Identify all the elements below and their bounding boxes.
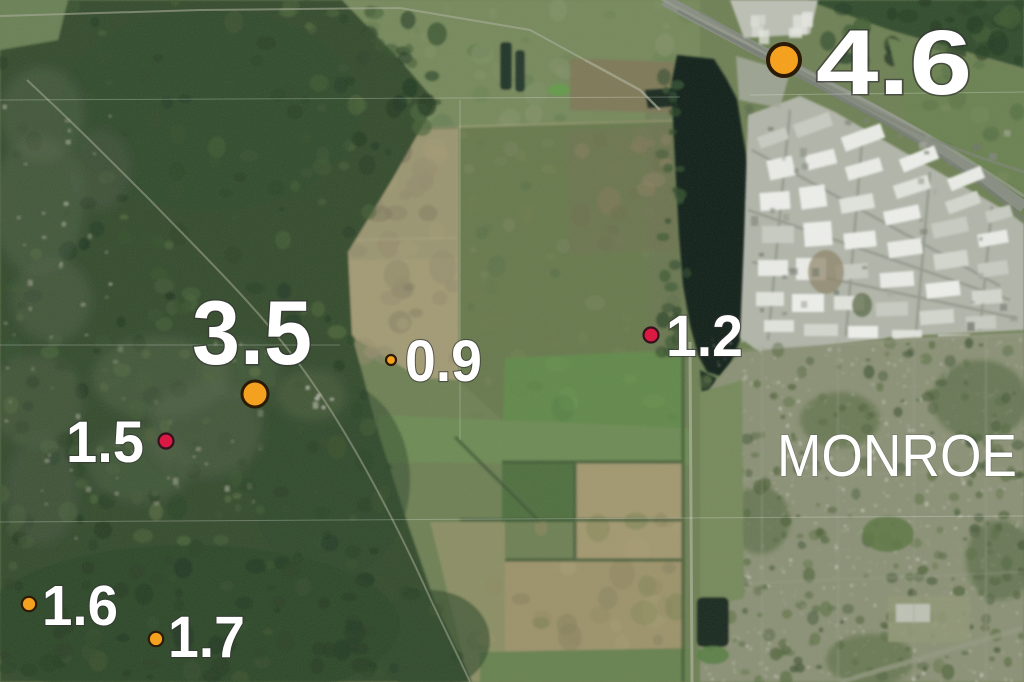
svg-text:3.5: 3.5 [192, 283, 312, 384]
svg-text:4.6: 4.6 [816, 12, 972, 114]
svg-text:1.7: 1.7 [168, 605, 245, 670]
svg-text:1.2: 1.2 [666, 304, 743, 369]
svg-text:1.6: 1.6 [42, 574, 118, 638]
svg-text:MONROE: MONROE [777, 423, 1017, 489]
svg-text:0.9: 0.9 [405, 329, 482, 394]
svg-text:1.5: 1.5 [66, 410, 144, 475]
